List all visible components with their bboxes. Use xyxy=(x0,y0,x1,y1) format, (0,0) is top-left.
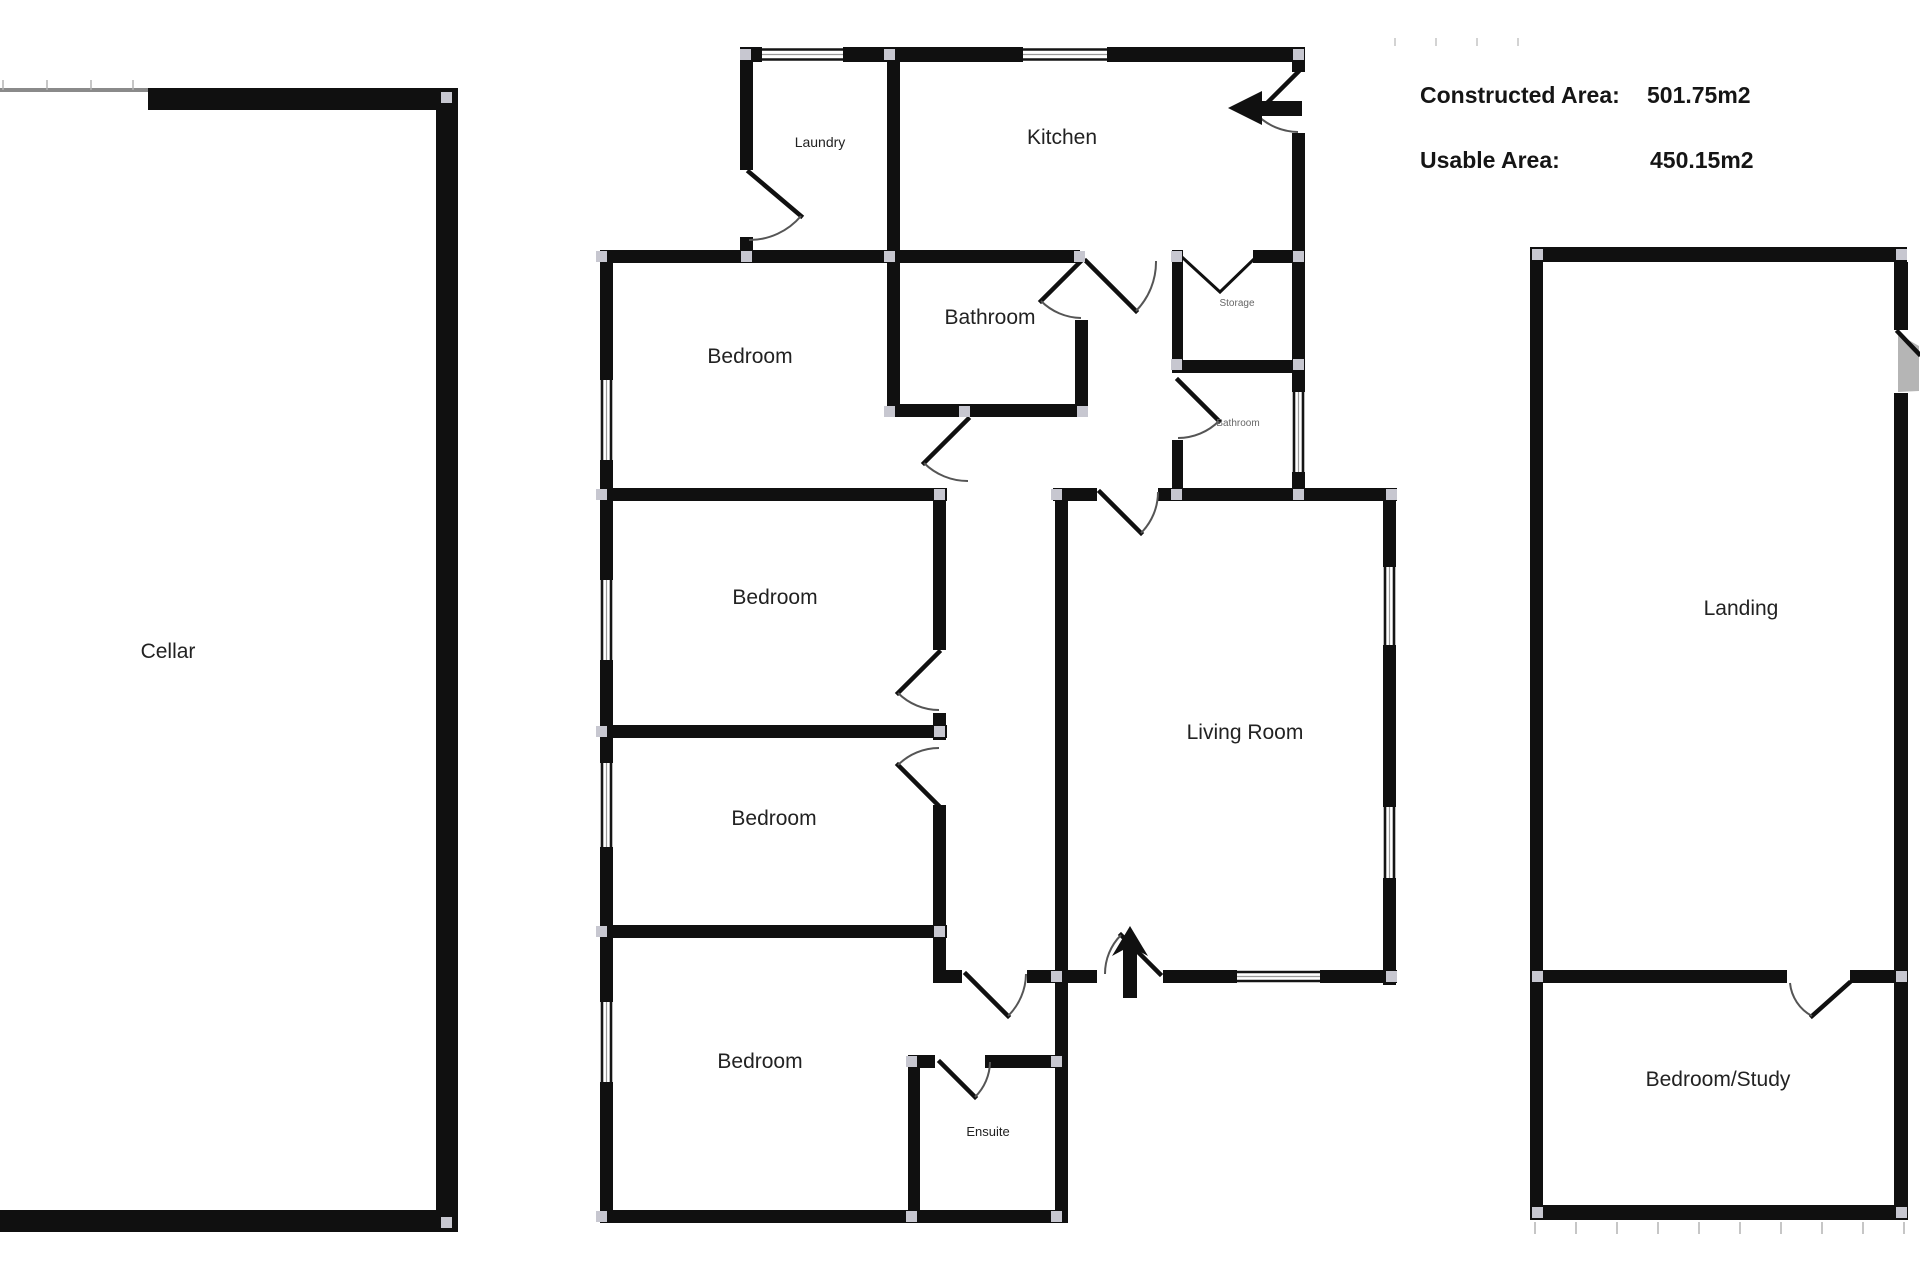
wall xyxy=(1292,373,1305,392)
door-swing-arc xyxy=(749,216,801,240)
door-swing-arc xyxy=(898,693,939,710)
window xyxy=(1292,392,1305,472)
door-living-room xyxy=(1100,492,1158,533)
wall xyxy=(1530,247,1907,262)
door-bedroom-study xyxy=(1790,983,1849,1016)
wall xyxy=(0,1210,458,1232)
wall xyxy=(1172,360,1305,373)
room-label-bedroom-4: Bedroom xyxy=(717,1050,802,1073)
wall xyxy=(600,250,613,380)
door-bedroom-2 xyxy=(898,652,939,710)
room-label-kitchen: Kitchen xyxy=(1027,126,1097,149)
wall xyxy=(933,805,946,978)
door-leaf xyxy=(940,1062,975,1097)
entrance-arrow xyxy=(1228,91,1302,125)
wall xyxy=(600,250,1080,263)
wall xyxy=(1292,257,1305,360)
door-bathroom-small xyxy=(1178,380,1219,438)
wall xyxy=(1530,247,1543,1217)
door-leaf xyxy=(898,765,939,806)
door-leaf xyxy=(1041,260,1082,301)
room-label-cellar: Cellar xyxy=(141,640,196,663)
door-bedroom-4 xyxy=(966,974,1026,1016)
wall xyxy=(1172,440,1183,488)
window xyxy=(600,763,613,847)
wall xyxy=(436,88,458,1232)
scale-ruler xyxy=(1535,1222,1904,1234)
wall xyxy=(600,725,947,738)
door-swing-arc xyxy=(1256,114,1298,132)
door-bathroom xyxy=(1041,260,1082,318)
usable-area-label: Usable Area: xyxy=(1420,147,1560,173)
cellar-floorplan: Cellar xyxy=(0,80,458,1232)
door-swing-arc xyxy=(1790,983,1812,1016)
wall xyxy=(1894,262,1908,330)
constructed-area-label: Constructed Area: xyxy=(1420,82,1620,108)
wall xyxy=(887,62,900,417)
area-summary: Constructed Area: 501.75m2 Usable Area: … xyxy=(1420,82,1754,173)
corner-markers xyxy=(596,49,1397,1222)
wall xyxy=(148,88,458,110)
room-label-living-room: Living Room xyxy=(1187,721,1304,744)
wall xyxy=(908,1068,920,1210)
window xyxy=(1383,807,1396,878)
wall xyxy=(600,847,613,1002)
wall xyxy=(1530,970,1787,983)
cut-wall-line xyxy=(0,88,150,92)
door-ensuite xyxy=(940,1062,990,1097)
door-bedroom-3 xyxy=(898,748,939,806)
floorplan-page: Cellar xyxy=(0,0,1920,1280)
door-laundry xyxy=(749,172,801,240)
door-bedroom-1 xyxy=(924,419,968,481)
upper-floor-plan: Landing Bedroom/Study xyxy=(1530,247,1919,1234)
wall xyxy=(887,404,1088,417)
window xyxy=(600,1002,613,1082)
corner-marker xyxy=(441,92,452,103)
wall xyxy=(600,1082,613,1223)
wall xyxy=(1172,257,1183,360)
wall xyxy=(933,970,962,983)
door-swing-arc xyxy=(1136,261,1156,311)
door-leaf xyxy=(966,974,1008,1016)
room-label-landing: Landing xyxy=(1704,597,1779,620)
wall xyxy=(1292,133,1305,257)
door-swing-arc xyxy=(1008,974,1026,1016)
room-label-bathroom: Bathroom xyxy=(944,306,1035,329)
room-label-bedroom-2: Bedroom xyxy=(732,586,817,609)
door-fold xyxy=(1183,258,1253,292)
room-label-storage: Storage xyxy=(1219,298,1254,309)
wall xyxy=(1158,488,1397,501)
wall xyxy=(600,925,947,938)
wall xyxy=(933,497,946,650)
door-swing-arc xyxy=(924,463,968,481)
door-leaf xyxy=(1812,983,1849,1016)
window xyxy=(1023,47,1107,62)
wall xyxy=(1894,393,1908,1205)
wall xyxy=(843,47,1023,62)
wall xyxy=(1107,47,1305,62)
door-leaf xyxy=(898,652,939,693)
wall xyxy=(600,660,613,763)
door-kitchen-entrance xyxy=(1228,72,1302,132)
floorplan-drawing: Cellar xyxy=(0,0,1920,1280)
door-swing-arc xyxy=(898,748,939,765)
room-label-bathroom-small: Bathroom xyxy=(1216,418,1259,429)
wall xyxy=(1383,878,1396,985)
wall xyxy=(740,62,753,170)
corner-marker xyxy=(441,1217,452,1228)
door-kitchen-hall xyxy=(1086,261,1156,311)
ground-floor-plan: Laundry Kitchen Bathroom Storage Bathroo… xyxy=(596,38,1518,1223)
door-upper-entry xyxy=(1898,332,1919,392)
door-swing-arc xyxy=(1141,492,1158,533)
door-leaf xyxy=(1086,261,1136,311)
window xyxy=(1237,970,1320,983)
constructed-area-value: 501.75m2 xyxy=(1647,82,1751,108)
room-label-bedroom-3: Bedroom xyxy=(731,807,816,830)
door-swing-arc xyxy=(1041,301,1081,318)
window xyxy=(762,47,843,62)
wall xyxy=(600,460,613,580)
wall xyxy=(1383,645,1396,807)
wall xyxy=(600,488,947,501)
room-label-bedroom-1: Bedroom xyxy=(707,345,792,368)
wall xyxy=(600,1210,1068,1223)
door-leaf xyxy=(1178,380,1219,421)
window xyxy=(600,580,613,660)
door-leaf xyxy=(749,172,801,216)
wall xyxy=(1055,497,1068,1223)
wall xyxy=(1075,320,1088,417)
door-swing-arc xyxy=(1178,421,1219,438)
wall xyxy=(1530,1205,1908,1220)
entrance-arrow xyxy=(1112,926,1148,998)
wall xyxy=(1163,970,1237,983)
door-main-entrance xyxy=(1105,926,1160,998)
window xyxy=(1383,567,1396,645)
room-label-bedroom-study: Bedroom/Study xyxy=(1646,1068,1791,1091)
door-leaf xyxy=(1100,492,1141,533)
door-leaf xyxy=(924,419,968,463)
window xyxy=(600,380,613,460)
door-storage xyxy=(1183,258,1253,292)
room-label-laundry: Laundry xyxy=(795,134,846,150)
wall xyxy=(1292,472,1305,488)
usable-area-value: 450.15m2 xyxy=(1650,147,1754,173)
room-label-ensuite: Ensuite xyxy=(966,1124,1009,1139)
